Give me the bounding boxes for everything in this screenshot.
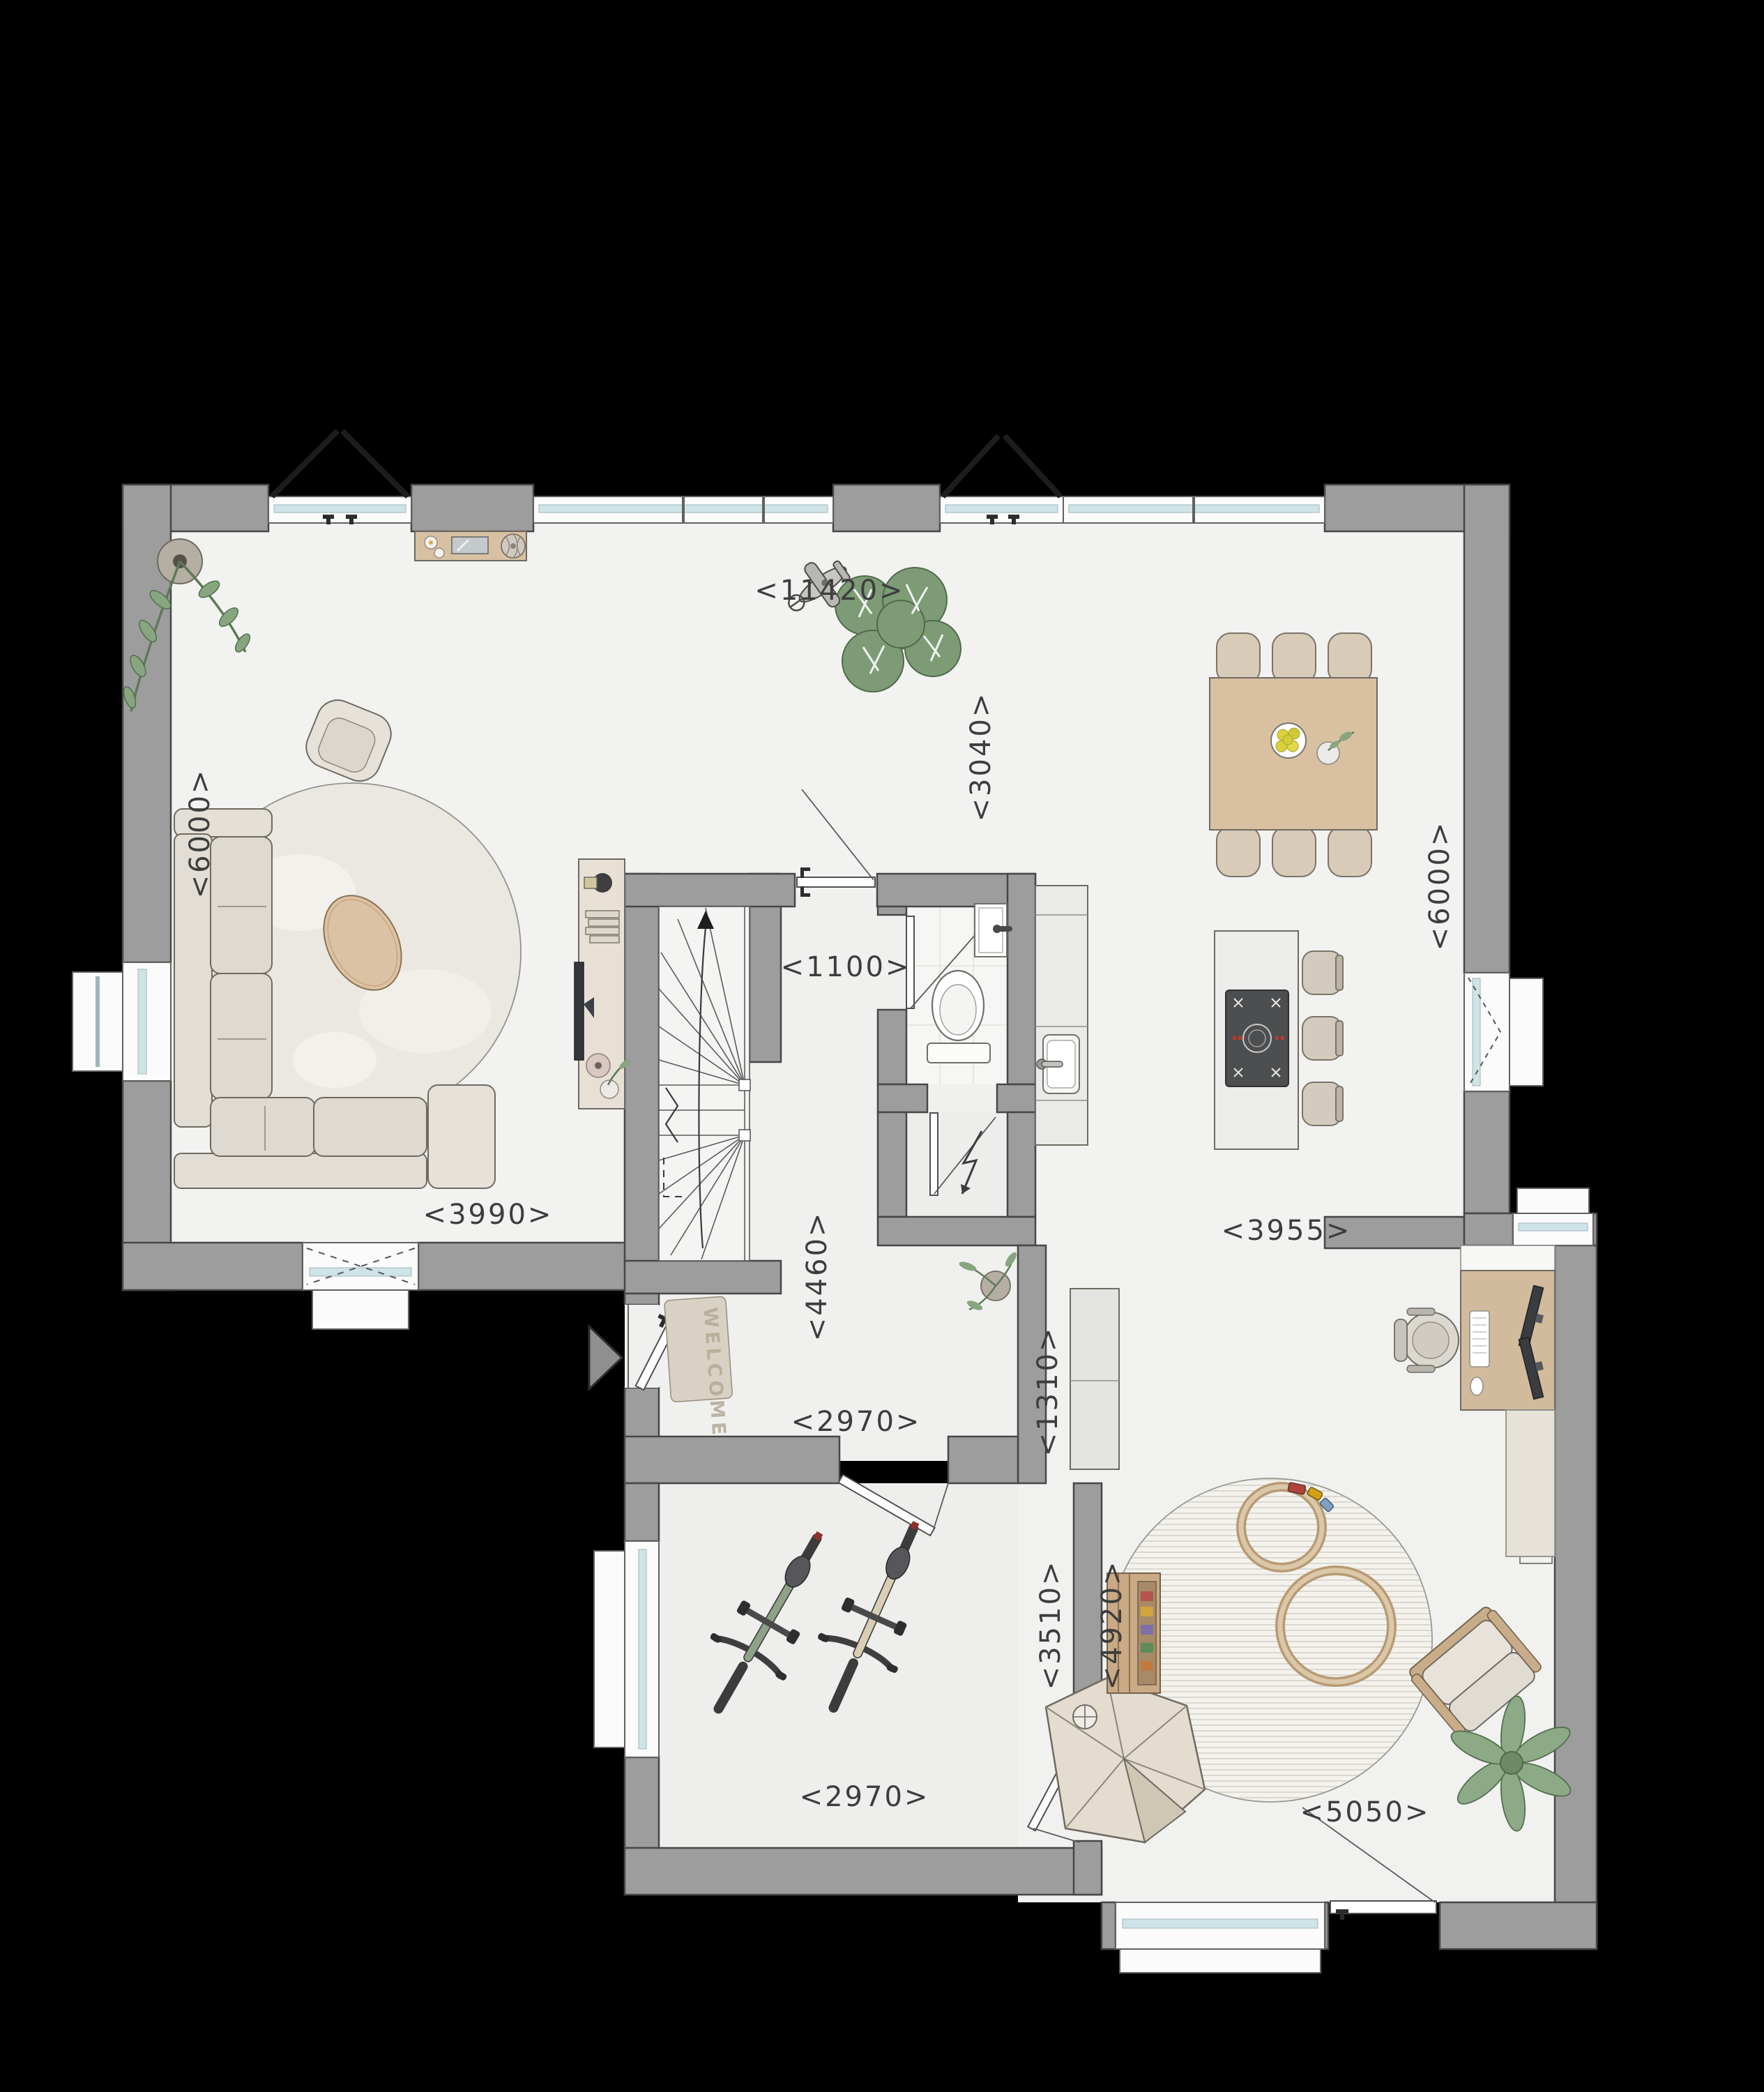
dining-chairs-top (1217, 633, 1371, 683)
wall-hall-bottom-b (948, 1437, 1018, 1483)
window-kitchen-right (1464, 973, 1543, 1091)
tall-cabinets (1070, 1289, 1119, 1469)
window-left-wall (73, 962, 171, 1081)
wall-stair-bottom (625, 1261, 781, 1294)
window-sill-shelf (1461, 1245, 1555, 1271)
window-playroom-bottom (1116, 1902, 1325, 1973)
wall-hall-bottom-a (625, 1437, 839, 1483)
window-desk-top (1513, 1188, 1593, 1245)
wall-top-pier-2 (833, 485, 940, 531)
dim-top-overall-width: <11420> (754, 575, 904, 607)
wall-playroom-right (1555, 1245, 1597, 1949)
wall-tech-left (878, 1112, 906, 1217)
desk-sideboard (1506, 1410, 1555, 1556)
wall-storage-playroom-b (1074, 1841, 1102, 1895)
dim-hall-width: <2970> (791, 1406, 922, 1438)
wall-toilet-right (1008, 874, 1035, 1084)
dim-storage-width: <2970> (800, 1781, 930, 1813)
wall-right-upper-a (1464, 485, 1510, 973)
wall-tech-bottom (878, 1217, 1035, 1245)
dim-playroom-depth: <4920> (1096, 1560, 1128, 1690)
staircase (659, 907, 750, 1261)
dim-stair-hall-opening: <1100> (781, 951, 911, 983)
wall-toilet-bottom-b (997, 1084, 1035, 1112)
wall-playroom-bottom-a (1102, 1902, 1116, 1949)
window-top-2 (1063, 497, 1325, 523)
window-top-1 (533, 497, 833, 523)
wall-playroom-bottom-c (1440, 1902, 1597, 1949)
wall-entry-stub (625, 1294, 659, 1305)
window-storage-left (594, 1541, 659, 1757)
stair-newel-post (739, 1130, 750, 1141)
dining-chairs-bottom (1217, 826, 1371, 877)
wall-right-upper-b (1464, 1091, 1510, 1213)
wall-living-bottom-a (123, 1243, 303, 1290)
dim-hall-depth: <4460> (801, 1211, 833, 1342)
wall-living-bottom-b (418, 1243, 634, 1290)
dim-living-width: <3990> (423, 1199, 554, 1231)
toilet-basin (975, 904, 1012, 957)
wall-desk-top-a (1464, 1213, 1513, 1245)
wall-storage-left-b (625, 1757, 659, 1848)
entry-sideboard (415, 531, 526, 561)
candle-icon (434, 548, 444, 558)
wall-toilet-left-a (878, 907, 906, 915)
window-living-bottom (303, 1243, 418, 1329)
dim-kitchen-side-right: <6000> (1424, 821, 1456, 951)
floor-plan-page: WELCOME (0, 0, 1764, 2092)
dim-kitchen-width: <3955> (1222, 1215, 1352, 1247)
mouse (1470, 1377, 1483, 1395)
floor-plan-drawing: WELCOME (0, 0, 1764, 2092)
wall-top-pier-1 (411, 485, 533, 531)
dim-passage-width: <1310> (1032, 1326, 1064, 1457)
wall-toilet-left-b (878, 1010, 906, 1084)
wall-storage-bottom (625, 1848, 1102, 1895)
wall-tech-right (1008, 1112, 1035, 1217)
rope-basket (501, 534, 525, 558)
wall-stair-left (625, 874, 659, 1264)
dim-dining-depth: <3040> (965, 692, 997, 822)
bar-stools (1302, 951, 1343, 1125)
wall-toilet-bottom-a (878, 1084, 927, 1112)
wall-storage-left-a (625, 1483, 659, 1541)
fruit-bowl (1271, 723, 1306, 758)
wall-hall-top-a (625, 874, 795, 907)
decor-tray (452, 537, 488, 554)
sofa-chaise (428, 1085, 495, 1188)
stair-newel-post (739, 1079, 750, 1091)
dim-storage-depth: <3510> (1035, 1560, 1067, 1690)
tv-screen (575, 962, 584, 1060)
kitchen-island (1215, 931, 1343, 1149)
media-console (575, 859, 631, 1109)
dim-living-side-left: <6000> (184, 768, 216, 899)
dim-playroom-opening: <5050> (1300, 1796, 1431, 1828)
kitchen-counter (1035, 886, 1088, 1145)
